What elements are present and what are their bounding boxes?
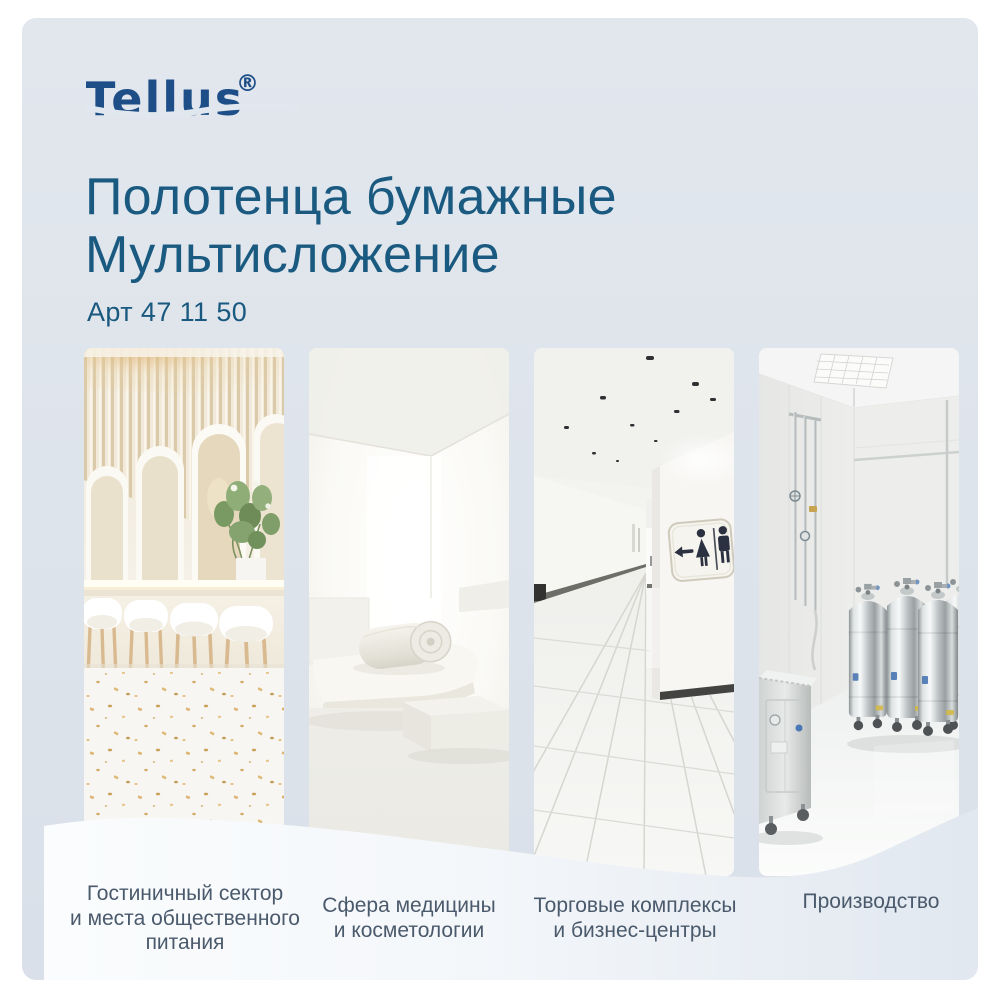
product-title-line2: Мультисложение [85, 226, 617, 284]
caption-line: и бизнес-центры [500, 919, 770, 944]
steel-tank [849, 584, 887, 730]
caption-line: Торговые комплексы [500, 894, 770, 919]
category-label-malls: Торговые комплексы и бизнес-центры [500, 894, 770, 943]
steel-tank [918, 582, 958, 736]
product-title-line1: Полотенца бумажные [85, 168, 617, 226]
restroom-sign [668, 519, 734, 582]
bed-pedestal [403, 696, 509, 764]
infographic-canvas: Tellus ® Полотенца бумажные Мультисложен… [0, 0, 1000, 1000]
product-title: Полотенца бумажные Мультисложение [85, 168, 617, 284]
right-column [652, 432, 734, 713]
caption-line: Производство [736, 890, 978, 915]
category-label-production: Производство [736, 890, 978, 915]
article-number: Арт 47 11 50 [87, 297, 247, 328]
brand-logo: Tellus ® [86, 68, 298, 132]
product-card: Tellus ® Полотенца бумажные Мультисложен… [22, 18, 978, 980]
registered-trademark-icon: ® [236, 71, 259, 97]
